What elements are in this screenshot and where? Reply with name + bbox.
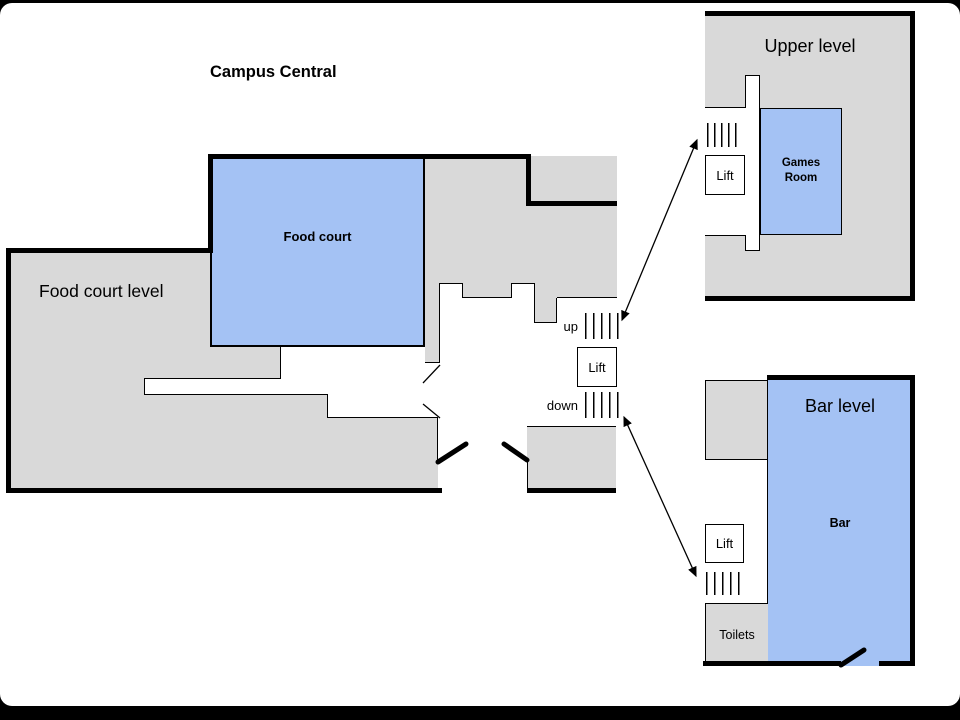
bar-level-title: Bar level [770, 395, 910, 417]
room-bar-label: Bar [800, 515, 880, 531]
drawing-sheet: Food court Campus Central [0, 3, 960, 706]
outer-wall [526, 201, 617, 206]
outer-wall [208, 154, 213, 253]
bar-stairs-icon [706, 572, 740, 595]
wall-edge [144, 394, 328, 395]
room-food-court-label: Food court [260, 229, 375, 243]
outer-wall [6, 248, 11, 493]
bar-side-room [705, 380, 768, 460]
room-food-court [210, 156, 425, 347]
wall-edge [144, 378, 281, 379]
main-floor-area [210, 347, 281, 378]
wall-edge [557, 297, 617, 298]
upper-lift-lobby-slot [745, 75, 760, 251]
main-level-title: Campus Central [210, 63, 337, 82]
room-toilets-label: Toilets [719, 628, 754, 642]
main-level-label: Food court level [39, 281, 164, 302]
wall-edge [534, 283, 535, 323]
wall-edge [527, 426, 616, 427]
stairs-up-label: up [540, 319, 578, 334]
floor-plan-drawing: Food court Campus Central [0, 0, 960, 720]
room-toilets: Toilets [705, 603, 768, 666]
door-leaf [504, 444, 527, 460]
wall-edge [463, 297, 512, 298]
stairs-down-icon [585, 392, 619, 418]
main-floor-area [535, 283, 557, 323]
stairs-up-icon [585, 313, 619, 339]
door-leaf [438, 444, 466, 462]
outer-wall [527, 488, 616, 493]
main-floor-area [8, 395, 328, 491]
outer-wall [208, 154, 530, 159]
main-floor-area [425, 156, 617, 283]
corridor-notch [144, 378, 281, 395]
outer-wall [6, 488, 442, 493]
door-swing [423, 404, 440, 418]
wall-edge [144, 378, 145, 395]
wall-edge [440, 283, 463, 284]
wall-edge [280, 347, 281, 378]
wall-edge [437, 418, 438, 461]
arrow-to-bar-level [624, 417, 696, 576]
main-floor-area [328, 418, 438, 491]
wall-edge [327, 395, 328, 418]
door-swing [423, 365, 440, 383]
outer-wall [703, 661, 841, 666]
bar-lift-box: Lift [705, 524, 744, 563]
stairs-down-label: down [528, 398, 578, 413]
arrow-to-upper-level [622, 140, 697, 320]
wall-edge [512, 283, 535, 284]
wall-edge [439, 283, 440, 363]
upper-level-title: Upper level [715, 35, 905, 57]
outer-wall [526, 154, 531, 206]
main-floor-area [527, 426, 616, 491]
upper-stairs-icon [707, 123, 737, 147]
wall-edge [511, 283, 512, 298]
room-games-room-label: Games Room [765, 153, 837, 189]
main-lift-box: Lift [577, 347, 617, 387]
wall-edge [527, 458, 528, 491]
wall-edge [328, 417, 438, 418]
outer-wall [8, 248, 213, 253]
upper-lift-box: Lift [705, 155, 745, 195]
outer-wall [879, 661, 915, 666]
